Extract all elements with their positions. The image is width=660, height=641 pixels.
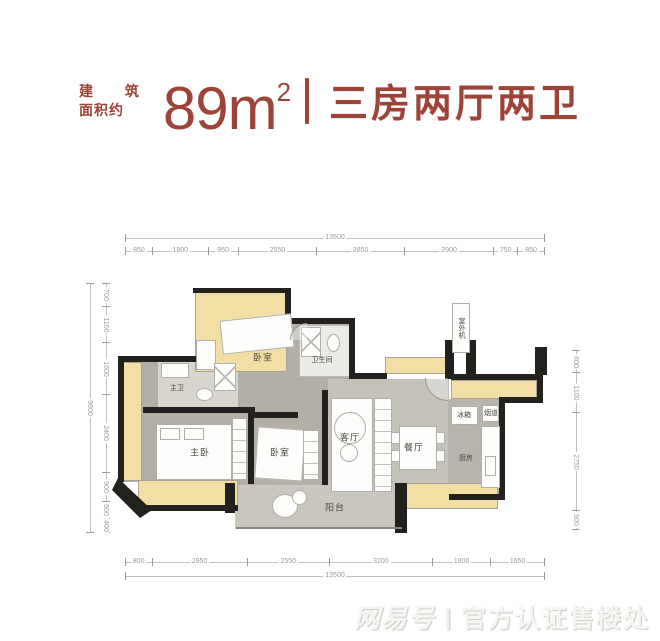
dimension-value: 500 (572, 512, 579, 528)
dimension-line-left-total: 9600 (86, 283, 94, 533)
room-label-master-bedroom: 主卧 (190, 446, 210, 459)
label-fridge: 冰箱 (457, 410, 471, 420)
dimension-value: 850 (523, 247, 539, 255)
dimension-value: 1800 (170, 247, 190, 255)
dimension-line-bottom-total: 13500 (125, 572, 545, 580)
dimension-value: 750 (498, 247, 514, 255)
dimension-value: 850 (131, 247, 147, 255)
floorplan: 卧室 卫生间 主卫 主卧 卧室 客厅 餐厅 厨房 冰箱 烟道 阳台 室外机 13… (0, 0, 660, 641)
wall-segment (253, 412, 298, 418)
dimension-value: 2750 (572, 452, 579, 472)
dimension-value: 800 (131, 558, 147, 566)
shower (214, 363, 236, 391)
room-label-master-bath: 主卫 (170, 383, 184, 393)
dimension-line-right: 600 1100 2750 500 (572, 350, 580, 530)
pillow (160, 428, 180, 440)
wall-diagonal (112, 478, 152, 518)
label-flue: 烟道 (484, 408, 498, 418)
dimension-value: 1650 (508, 558, 528, 566)
wall-segment (248, 412, 254, 484)
room-label-kitchen: 厨房 (459, 453, 473, 463)
wall-pier (535, 347, 547, 375)
room-label-bedroom-2: 卧室 (270, 446, 290, 459)
dimension-value: 13500 (323, 234, 346, 242)
tv-cabinet (374, 398, 392, 492)
chair (391, 432, 400, 444)
dimension-value: 2550 (268, 247, 288, 255)
watermark-text: 官方认证售楼处 (461, 599, 650, 635)
label-outdoor-unit: 室外机 (456, 318, 466, 339)
wardrobe (303, 430, 319, 480)
dimension-value: 400 (102, 518, 109, 534)
side-table (340, 444, 358, 462)
pillow (184, 428, 204, 440)
wall-segment (118, 356, 124, 482)
dimension-value: 600 (572, 354, 579, 370)
toilet-icon (196, 388, 213, 401)
dimension-value: 2850 (351, 247, 371, 255)
dimension-value: 700 (102, 287, 109, 303)
dimension-value: 950 (215, 247, 231, 255)
room-label-living: 客厅 (340, 431, 360, 444)
room-label-dining: 餐厅 (404, 441, 424, 454)
lounge-table (292, 490, 307, 505)
room-label-bathroom: 卫生间 (312, 355, 333, 365)
wall-pier (395, 483, 407, 533)
watermark-divider: | (445, 604, 451, 630)
dimension-line-left: 700 1100 1600 2400 900 500 400 (102, 283, 110, 533)
wall-segment (193, 288, 290, 293)
walls-layer (0, 0, 660, 641)
wall-segment (349, 318, 355, 379)
room-label-bedroom-top: 卧室 (253, 351, 273, 364)
dimension-value: 1600 (102, 359, 109, 379)
chair (436, 432, 445, 444)
wall-segment (499, 397, 543, 403)
dimension-value: 13500 (323, 572, 346, 580)
wall-segment (451, 374, 543, 380)
dimension-value: 9600 (86, 398, 93, 418)
dimension-line-bottom: 800 2950 2550 3200 1800 1650 (125, 558, 545, 566)
kitchen-sink (485, 456, 496, 476)
dimension-value: 2950 (190, 558, 210, 566)
netease-logo: 网易号 (354, 598, 435, 635)
dimension-value: 2900 (439, 247, 459, 255)
dimension-value: 1800 (452, 558, 472, 566)
dimension-value: 2550 (278, 558, 298, 566)
dimension-value: 3200 (371, 558, 391, 566)
toilet-icon (327, 334, 340, 352)
wardrobe (232, 418, 247, 480)
wall-segment (136, 505, 238, 511)
wall-segment (449, 494, 505, 500)
dimension-value: 900 (102, 479, 109, 495)
dimension-value: 500 (102, 502, 109, 518)
desk (196, 340, 216, 370)
chair (436, 450, 445, 462)
chair (391, 450, 400, 462)
dimension-value: 1100 (572, 383, 579, 402)
wall-segment (143, 407, 255, 413)
wall-segment (349, 373, 387, 379)
dimension-line-top-total: 13500 (125, 234, 545, 242)
wall-segment (322, 390, 328, 485)
wall-segment (118, 356, 198, 362)
room-label-balcony: 阳台 (325, 501, 345, 514)
watermark: 网易号 | 官方认证售楼处 (354, 598, 650, 635)
dimension-value: 1100 (102, 315, 109, 334)
sink (161, 363, 189, 378)
balcony-railing (236, 527, 402, 529)
dimension-line-top: 850 1800 950 2550 2850 2900 750 850 (125, 247, 545, 255)
wall-segment (283, 318, 355, 324)
dimension-value: 2400 (102, 424, 109, 444)
